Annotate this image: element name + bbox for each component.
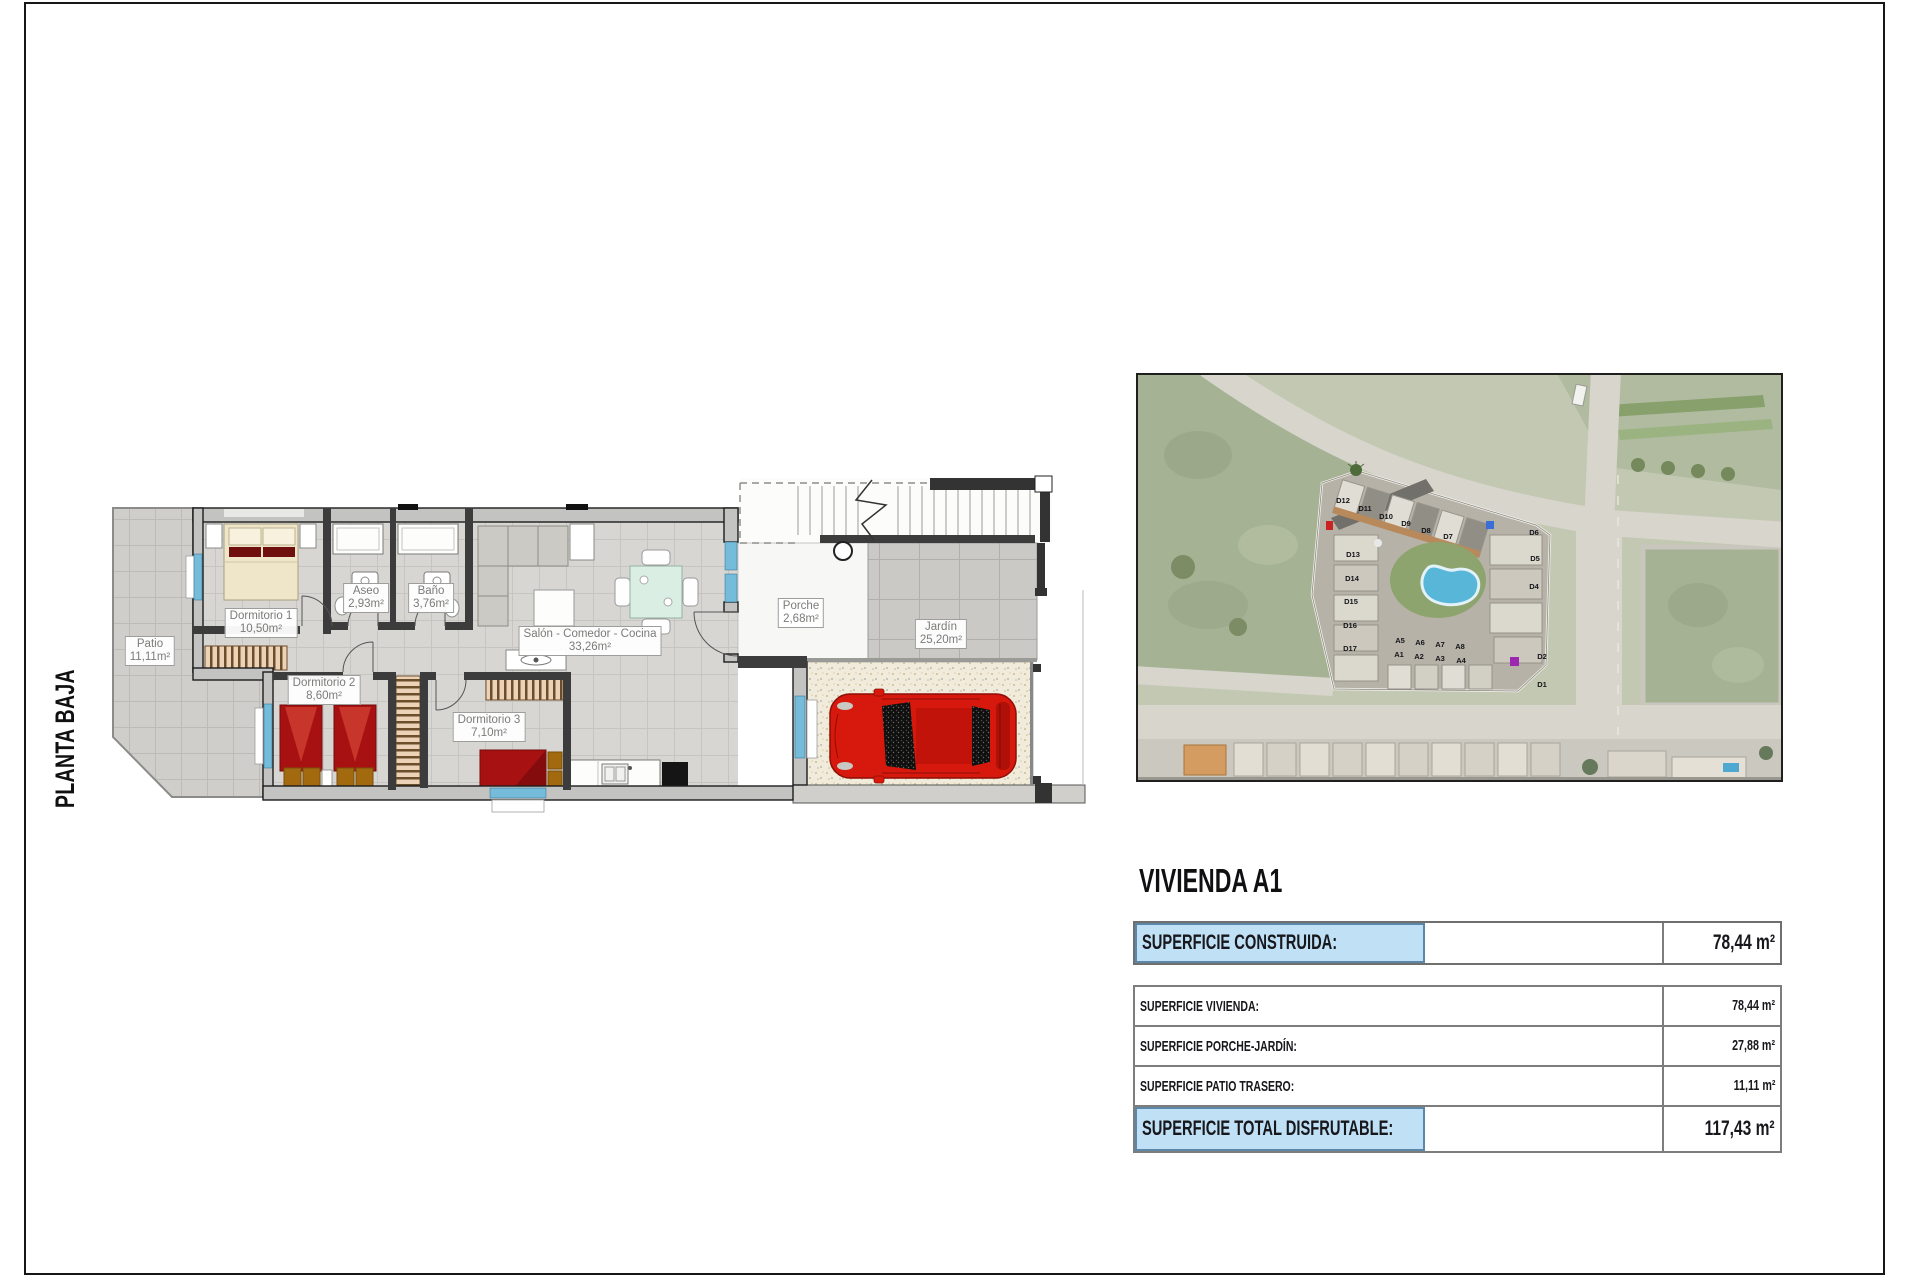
surface-row: SUPERFICIE PATIO TRASERO:11,11 m² <box>1135 1067 1780 1107</box>
site-map-drawing: D12D11D10D9D8D7D13D14D15D16D17D6D5D4D2D1… <box>1138 375 1781 780</box>
surface-row-label: SUPERFICIE PATIO TRASERO: <box>1140 1078 1294 1095</box>
aerial-site-photo: D12D11D10D9D8D7D13D14D15D16D17D6D5D4D2D1… <box>1136 373 1783 782</box>
site-unit-label-d7: D7 <box>1443 532 1453 541</box>
site-unit-label-a2: A2 <box>1414 652 1424 661</box>
room-label-dormitorio-3: Dormitorio 37,10m² <box>453 712 526 742</box>
bottom-buildings <box>1138 739 1781 780</box>
site-unit-label-a1: A1 <box>1394 650 1404 659</box>
total-value: 117,43 m² <box>1705 1117 1775 1141</box>
site-unit-label-d14: D14 <box>1345 574 1360 583</box>
site-unit-label-a5: A5 <box>1395 636 1405 645</box>
room-label-salon-comedor-cocina: Salón - Comedor - Cocina33,26m² <box>519 626 662 656</box>
site-unit-label-d2: D2 <box>1537 652 1547 661</box>
room-labels-layer: Dormitorio 110,50m²Aseo2,93m²Baño3,76m²S… <box>90 470 1090 820</box>
floor-level-title: PLANTA BAJA <box>50 669 81 808</box>
surface-row-label: SUPERFICIE VIVIENDA: <box>1140 998 1259 1015</box>
surface-row-value-cell: 27,88 m² <box>1662 1027 1780 1065</box>
room-label-aseo: Aseo2,93m² <box>343 583 389 613</box>
site-unit-label-d11: D11 <box>1358 504 1371 513</box>
floor-plan: Dormitorio 110,50m²Aseo2,93m²Baño3,76m²S… <box>90 470 1090 820</box>
room-label-bano: Baño3,76m² <box>408 583 454 613</box>
surface-row-value: 11,11 m² <box>1733 1078 1775 1094</box>
site-unit-label-a6: A6 <box>1415 638 1425 647</box>
site-unit-label-d13: D13 <box>1346 550 1360 559</box>
total-label-cell: SUPERFICIE TOTAL DISFRUTABLE: <box>1135 1107 1425 1151</box>
surface-detail-rows: SUPERFICIE VIVIENDA:78,44 m²SUPERFICIE P… <box>1135 987 1780 1107</box>
site-unit-label-a7: A7 <box>1435 640 1445 649</box>
site-unit-label-d17: D17 <box>1343 644 1357 653</box>
field-right <box>1643 547 1781 705</box>
site-unit-label-a8: A8 <box>1455 642 1465 651</box>
site-unit-label-d16: D16 <box>1343 621 1357 630</box>
surface-row-value-cell: 11,11 m² <box>1662 1067 1780 1105</box>
site-unit-label-d9: D9 <box>1401 519 1411 528</box>
surface-row-value: 78,44 m² <box>1732 998 1775 1014</box>
room-label-patio: Patio11,11m² <box>125 636 175 666</box>
room-label-dormitorio-1: Dormitorio 110,50m² <box>225 608 298 638</box>
constructed-label: SUPERFICIE CONSTRUIDA: <box>1142 931 1337 955</box>
site-unit-label-d4: D4 <box>1529 582 1539 591</box>
total-value-cell: 117,43 m² <box>1662 1107 1780 1151</box>
site-unit-label-d8: D8 <box>1421 526 1431 535</box>
unit-title: VIVIENDA A1 <box>1139 862 1344 900</box>
surface-row-label-cell: SUPERFICIE PORCHE-JARDÍN: <box>1135 1027 1662 1065</box>
site-unit-label-d6: D6 <box>1529 528 1539 537</box>
room-label-porche: Porche2,68m² <box>778 598 824 628</box>
total-label: SUPERFICIE TOTAL DISFRUTABLE: <box>1142 1117 1393 1141</box>
site-unit-label-d15: D15 <box>1344 597 1358 606</box>
room-label-jardin: Jardín25,20m² <box>915 619 967 649</box>
site-unit-label-d5: D5 <box>1530 554 1540 563</box>
site-unit-label-d10: D10 <box>1379 512 1393 521</box>
surface-row: SUPERFICIE VIVIENDA:78,44 m² <box>1135 987 1780 1027</box>
constructed-area-table: SUPERFICIE CONSTRUIDA: 78,44 m² <box>1133 921 1782 965</box>
surface-detail-table: SUPERFICIE VIVIENDA:78,44 m²SUPERFICIE P… <box>1133 985 1782 1153</box>
surface-row-value: 27,88 m² <box>1732 1038 1775 1054</box>
constructed-label-cell: SUPERFICIE CONSTRUIDA: <box>1135 923 1425 963</box>
constructed-value: 78,44 m² <box>1713 931 1775 955</box>
surface-row-label: SUPERFICIE PORCHE-JARDÍN: <box>1140 1038 1297 1055</box>
room-label-dormitorio-2: Dormitorio 28,60m² <box>288 675 361 705</box>
total-row: SUPERFICIE TOTAL DISFRUTABLE: 117,43 m² <box>1135 1107 1780 1151</box>
surface-row-label-cell: SUPERFICIE VIVIENDA: <box>1135 987 1662 1025</box>
surface-row-label-cell: SUPERFICIE PATIO TRASERO: <box>1135 1067 1662 1105</box>
site-unit-label-d12: D12 <box>1336 496 1350 505</box>
swimming-pool <box>1422 566 1479 605</box>
surface-row: SUPERFICIE PORCHE-JARDÍN:27,88 m² <box>1135 1027 1780 1067</box>
site-unit-label-a4: A4 <box>1456 656 1466 665</box>
site-unit-label-d1: D1 <box>1537 680 1547 689</box>
constructed-value-cell: 78,44 m² <box>1662 923 1780 963</box>
surface-row-value-cell: 78,44 m² <box>1662 987 1780 1025</box>
site-unit-label-a3: A3 <box>1435 654 1445 663</box>
